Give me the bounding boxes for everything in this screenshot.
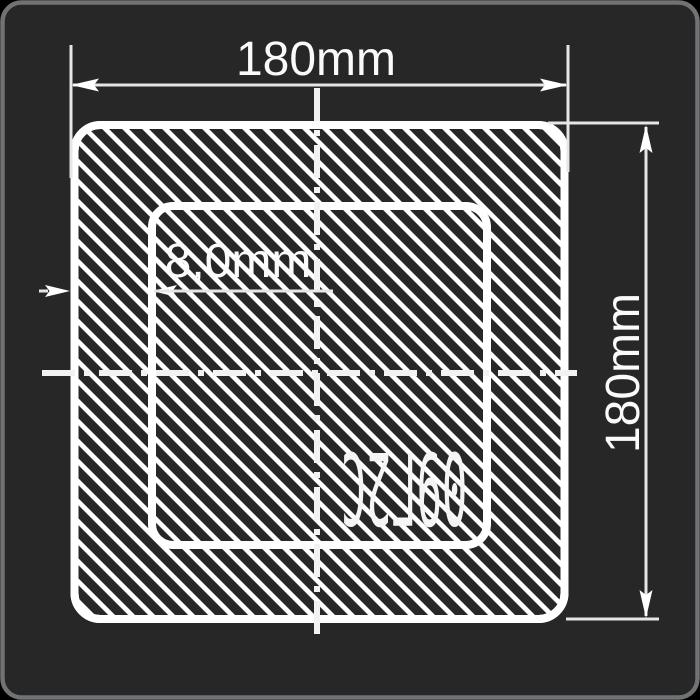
steel-grade-label: 09Г2С — [341, 428, 467, 544]
outer-height-label: 180mm — [597, 293, 650, 453]
wall-thickness-label: 8,0mm — [165, 235, 312, 288]
outer-width-label: 180mm — [236, 33, 396, 86]
tube-cross-section-drawing: 180mm 180mm 8,0mm 09Г2С — [0, 0, 700, 700]
